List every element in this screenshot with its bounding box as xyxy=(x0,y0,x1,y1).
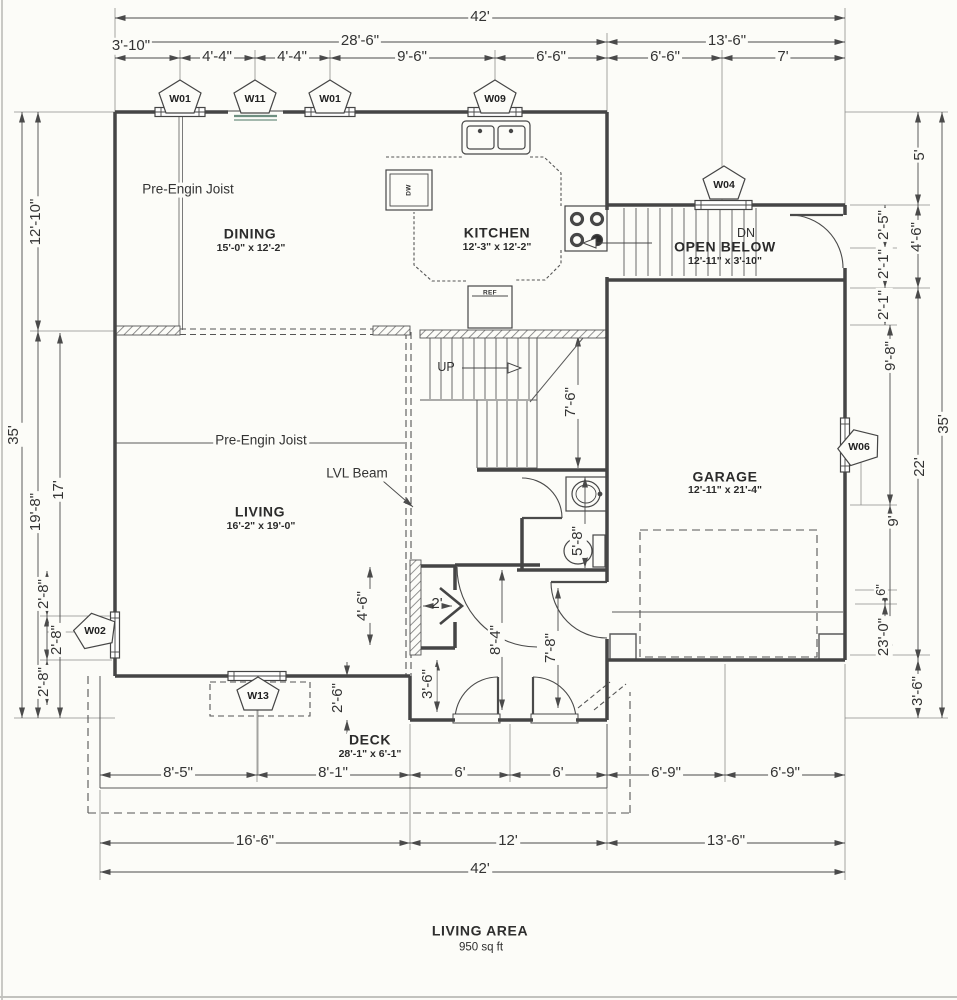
dim-closet-w: 2' xyxy=(429,596,444,613)
dimension-lines xyxy=(22,18,942,872)
dim-right-9: 6" xyxy=(874,582,888,598)
tag-w01b-label: W01 xyxy=(317,94,343,106)
kitchen-sink-icon xyxy=(462,121,530,154)
dim-left-1: 12'-10" xyxy=(28,197,45,248)
dim-right-4: 2'-1" xyxy=(876,247,893,281)
living-area-value: 950 sq ft xyxy=(457,942,505,955)
dim-top-5: 6'-6" xyxy=(534,49,568,66)
dim-bathroom: 5'-8" xyxy=(570,524,587,558)
dim-bottom-right-span: 13'-6" xyxy=(705,833,747,850)
dim-left-3: 17' xyxy=(51,478,68,502)
bath-sink-icon xyxy=(566,477,607,511)
dim-right-total: 35' xyxy=(936,412,953,436)
dim-top-4: 9'-6" xyxy=(395,49,429,66)
floorplan-sheet: 42' 28'-6" 13'-6" 3'-10" 4'-4" 4'-4" 9'-… xyxy=(0,0,957,1000)
dim-right-2: 2'-5" xyxy=(876,208,893,242)
note-lvl-beam: LVL Beam xyxy=(324,467,390,482)
room-open-below-size: 12'-11" x 3'-10" xyxy=(686,256,764,268)
dim-left-6: 2'-8" xyxy=(36,665,53,699)
window-tag-pentagons xyxy=(71,80,884,710)
room-kitchen-label: KITCHEN xyxy=(462,225,532,240)
dim-left-2: 19'-8" xyxy=(28,491,45,533)
living-area-title: LIVING AREA xyxy=(430,923,530,938)
tag-w04-label: W04 xyxy=(711,180,737,192)
up-arrow-icon xyxy=(508,363,521,373)
room-dining-size: 15'-0" x 12'-2" xyxy=(215,243,288,255)
dim-right-1: 5' xyxy=(912,147,929,162)
dim-top-1: 3'-10" xyxy=(110,38,152,55)
floorplan-drawing xyxy=(0,0,957,1000)
room-living-size: 16'-2" x 19'-0" xyxy=(225,521,298,533)
room-living-label: LIVING xyxy=(233,504,287,519)
note-dn: DN xyxy=(735,227,757,241)
extension-lines xyxy=(14,8,948,880)
room-garage-size: 12'-11" x 21'-4" xyxy=(686,485,764,497)
dim-right-6: 9'-8" xyxy=(883,339,900,373)
dim-entry-mid: 8'-4" xyxy=(488,623,505,657)
dim-top-right-span: 13'-6" xyxy=(706,33,748,50)
dim-bottom-2: 8'-1" xyxy=(316,765,350,782)
room-deck-label: DECK xyxy=(347,732,393,747)
room-dining-label: DINING xyxy=(222,226,279,241)
dim-right-3: 4'-6" xyxy=(909,220,926,254)
dim-closet-h: 4'-6" xyxy=(355,589,372,623)
dim-stair-hall: 7'-6" xyxy=(563,385,580,419)
dim-top-7: 7' xyxy=(775,49,790,66)
dim-left-5: 2'-8" xyxy=(49,623,66,657)
scan-edge-artifacts xyxy=(0,0,957,1000)
tag-w11-label: W11 xyxy=(242,94,267,106)
dim-bottom-4: 6' xyxy=(550,765,565,782)
room-deck-size: 28'-1" x 6'-1" xyxy=(337,749,404,761)
tag-w01a-label: W01 xyxy=(167,94,193,106)
dim-right-7: 22' xyxy=(912,455,929,479)
dim-bottom-3: 6' xyxy=(452,765,467,782)
dim-entry-side: 3'-6" xyxy=(420,667,437,701)
dim-right-8: 9' xyxy=(886,513,903,528)
dim-right-11: 3'-6" xyxy=(910,674,927,708)
room-garage-label: GARAGE xyxy=(690,469,759,484)
dim-top-6: 6'-6" xyxy=(648,49,682,66)
dim-bottom-1: 8'-5" xyxy=(161,765,195,782)
dim-right-10: 23'-0" xyxy=(876,616,893,658)
dim-right-5: 2'-1" xyxy=(876,288,893,322)
dim-left-4: 2'-8" xyxy=(36,577,53,611)
dim-top-left-span: 28'-6" xyxy=(339,33,381,50)
garage-stall-dashed xyxy=(640,530,817,657)
room-kitchen-size: 12'-3" x 12'-2" xyxy=(461,242,534,254)
dim-top-3: 4'-4" xyxy=(275,49,309,66)
dim-bottom-5: 6'-9" xyxy=(649,765,683,782)
dim-bottom-mid-span: 12' xyxy=(496,833,520,850)
window-w04 xyxy=(695,201,752,211)
dim-bottom-left-span: 16'-6" xyxy=(234,833,276,850)
note-dw: DW xyxy=(405,182,412,197)
dim-top-2: 4'-4" xyxy=(200,49,234,66)
tag-w09-label: W09 xyxy=(482,94,508,106)
tag-w13-label: W13 xyxy=(245,691,271,703)
note-up: UP xyxy=(435,361,456,375)
dn-arrow-icon xyxy=(583,238,596,248)
dim-top-total: 42' xyxy=(468,9,492,26)
tag-w02-label: W02 xyxy=(82,626,108,638)
dim-deck-step: 2'-6" xyxy=(330,681,347,715)
room-open-below-label: OPEN BELOW xyxy=(672,239,778,254)
dim-bottom-6: 6'-9" xyxy=(768,765,802,782)
note-joist-living: Pre-Engin Joist xyxy=(213,434,309,449)
dim-left-total: 35' xyxy=(6,423,23,447)
tag-w06-label: W06 xyxy=(846,442,872,454)
note-ref: REF xyxy=(481,289,499,296)
dim-entry-right: 7'-8" xyxy=(543,631,560,665)
structure-thin xyxy=(100,112,845,788)
dim-bottom-total: 42' xyxy=(468,861,492,878)
note-joist-dining: Pre-Engin Joist xyxy=(140,183,236,198)
